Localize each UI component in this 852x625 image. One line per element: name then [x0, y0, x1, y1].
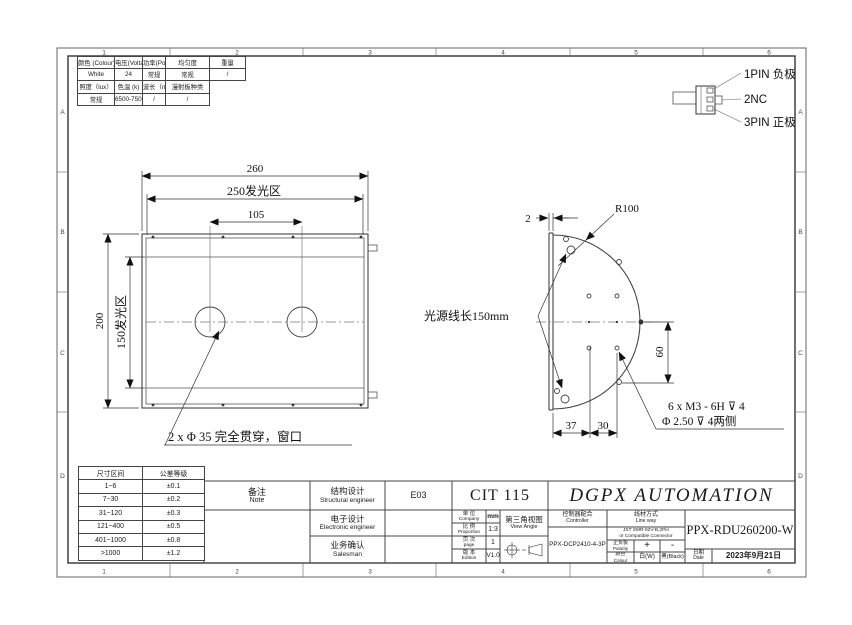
zone-top-3: 3: [368, 50, 372, 57]
svg-text:D: D: [798, 473, 803, 480]
dim-200: 200: [94, 312, 106, 329]
tol-range: 1~6: [79, 480, 143, 493]
colour-label: 颜色 Colour: [607, 552, 634, 563]
tol-grade: ±0.8: [143, 533, 205, 546]
lineway-label: 线材方式 Line way: [607, 510, 685, 527]
pin1-label: 1PIN 负极: [744, 67, 796, 81]
svg-text:B: B: [60, 229, 64, 236]
svg-text:5: 5: [634, 569, 638, 576]
edition-value: V1.0: [486, 549, 500, 563]
tol-range: 31~120: [79, 507, 143, 520]
spec-uniformity-value: 常规: [166, 69, 210, 81]
tol-range: >1000: [79, 547, 143, 560]
polarity-label: 正负极 Polarity: [607, 540, 634, 552]
spec-colortemp-value: 6500-7500: [115, 93, 143, 105]
colour-white: 白(W): [634, 552, 660, 563]
side-view: 2 R100 光源线长150mm 60 37 30 6 x M: [424, 203, 784, 438]
spec-voltage-value: 24: [115, 69, 143, 81]
radius-label: R100: [615, 203, 639, 215]
svg-text:2: 2: [235, 569, 239, 576]
dim-30: 30: [598, 420, 610, 432]
tolerance-table: 尺寸区间 公差等级 1~6±0.1 7~30±0.2 31~120±0.3 12…: [78, 466, 205, 561]
zone-letters-left: A B C D: [60, 109, 65, 480]
spec-table: 颜色 (Colour) 电压(Voltage) 功率(Power) 均匀度 重量…: [77, 56, 246, 106]
svg-text:C: C: [798, 350, 803, 357]
spec-wavelength-value: /: [143, 93, 166, 105]
zone-top-6: 6: [767, 50, 771, 57]
svg-text:4: 4: [501, 569, 505, 576]
pin3-label: 3PIN 正极: [744, 115, 796, 129]
spec-header-wavelength: 波长（nm）: [143, 81, 166, 93]
electronic-engineer-cell: 电子设计 Electronic engineer: [310, 510, 385, 536]
structural-engineer-value: E03: [385, 481, 452, 510]
third-angle-symbol: [500, 536, 548, 563]
svg-text:A: A: [798, 109, 803, 116]
date-value: 2023年9月21日: [712, 549, 795, 563]
note-cell: 备注 Note: [204, 481, 310, 510]
dim-260: 260: [247, 163, 264, 175]
salesman-cell: 业务确认 Salesman: [310, 536, 385, 563]
polarity-plus: +: [634, 540, 660, 552]
unit-value: mm: [486, 510, 500, 523]
svg-text:D: D: [60, 473, 65, 480]
zone-letters-right: A B C D: [798, 109, 803, 480]
note-label-cn: 备注: [248, 487, 266, 497]
pin2-label: 2NC: [744, 94, 767, 106]
tol-range: 121~400: [79, 520, 143, 533]
thread-note-line2: Φ 2.50 ⊽ 4两侧: [662, 415, 736, 428]
spec-weight-value: /: [210, 69, 246, 81]
drawing-code: CIT 115: [452, 481, 548, 510]
structural-engineer-cell: 结构设计 Structural engineer: [310, 481, 385, 510]
tol-range: 7~30: [79, 493, 143, 506]
dim-37: 37: [566, 420, 578, 432]
dim-thickness-2: 2: [525, 213, 531, 225]
tol-grade: ±0.2: [143, 493, 205, 506]
dim-60: 60: [654, 346, 666, 358]
spec-header-power: 功率(Power): [143, 57, 166, 69]
connector-detail: 1PIN 负极 2NC 3PIN 正极: [673, 67, 796, 129]
svg-text:6: 6: [767, 569, 771, 576]
hole-note: 2 x Φ 35 完全贯穿，窗口: [168, 429, 302, 444]
svg-text:A: A: [60, 109, 65, 116]
colour-black: 黑(Black): [660, 552, 685, 563]
unit-label: 单 位 Company: [452, 510, 486, 523]
proportion-value: 1:3: [486, 523, 500, 536]
spec-header-diffuser: 漫射板种类: [166, 81, 210, 93]
controller-value: PPX-DCP2410-4-3P: [548, 527, 607, 563]
zone-top-4: 4: [501, 50, 505, 57]
spec-lux-value: 常规: [78, 93, 115, 105]
svg-text:1: 1: [102, 569, 106, 576]
thread-note-line1: 6 x M3 - 6H ⊽ 4: [668, 401, 745, 413]
spec-header-voltage: 电压(Voltage): [115, 57, 143, 69]
tol-header-grade: 公差等级: [143, 467, 205, 480]
svg-text:C: C: [60, 350, 65, 357]
dim-250-emitting: 250发光区: [227, 183, 281, 198]
spec-header-weight: 重量: [210, 57, 246, 69]
controller-label: 控制器配合 Controller: [548, 510, 607, 527]
third-angle-projection-icon: [502, 538, 546, 562]
spec-header-lux: 照度（lux）: [78, 81, 115, 93]
edition-label: 版 本 Edition: [452, 549, 486, 563]
spec-colour-value: White: [78, 69, 115, 81]
tol-grade: ±0.5: [143, 520, 205, 533]
front-view: 260 250发光区 105 200 150发光区 2 x Φ 35 完全贯穿，…: [94, 163, 377, 445]
svg-text:3: 3: [368, 569, 372, 576]
tol-grade: ±1.2: [143, 547, 205, 560]
page-value: 1: [486, 536, 500, 549]
dim-105: 105: [248, 209, 265, 221]
engineering-drawing-sheet: 1 2 3 4 5 6 1 2 3 4 5 6 A B C D: [0, 0, 852, 625]
tol-header-range: 尺寸区间: [79, 467, 143, 480]
zone-top-5: 5: [634, 50, 638, 57]
cable-length-note: 光源线长150mm: [424, 309, 509, 323]
spec-header-colortemp: 色温 (k): [115, 81, 143, 93]
proportion-label: 比 例 Proportion: [452, 523, 486, 536]
note-label-en: Note: [250, 497, 265, 505]
page-label: 页 次 page: [452, 536, 486, 549]
spec-diffuser-value: /: [166, 93, 210, 105]
dim-150-emitting: 150发光区: [113, 295, 128, 349]
company-name: DGPX AUTOMATION: [548, 481, 795, 510]
spec-power-value: 常规: [143, 69, 166, 81]
polarity-minus: -: [660, 540, 685, 552]
spec-header-uniformity: 均匀度: [166, 57, 210, 69]
tol-grade: ±0.3: [143, 507, 205, 520]
spec-header-colour: 颜色 (Colour): [78, 57, 115, 69]
view-angle-label: 第三角视图 View Angle: [500, 510, 548, 536]
date-label: 日期 Date: [685, 549, 712, 563]
lineway-value: JST SMR-02V-B,2Pin or Compatible Connect…: [607, 527, 685, 540]
zone-numbers-bottom: 1 2 3 4 5 6: [102, 569, 771, 576]
tol-grade: ±0.1: [143, 480, 205, 493]
tol-range: 401~1000: [79, 533, 143, 546]
svg-text:B: B: [798, 229, 802, 236]
part-number: PPX-RDU260200-W: [685, 510, 795, 549]
